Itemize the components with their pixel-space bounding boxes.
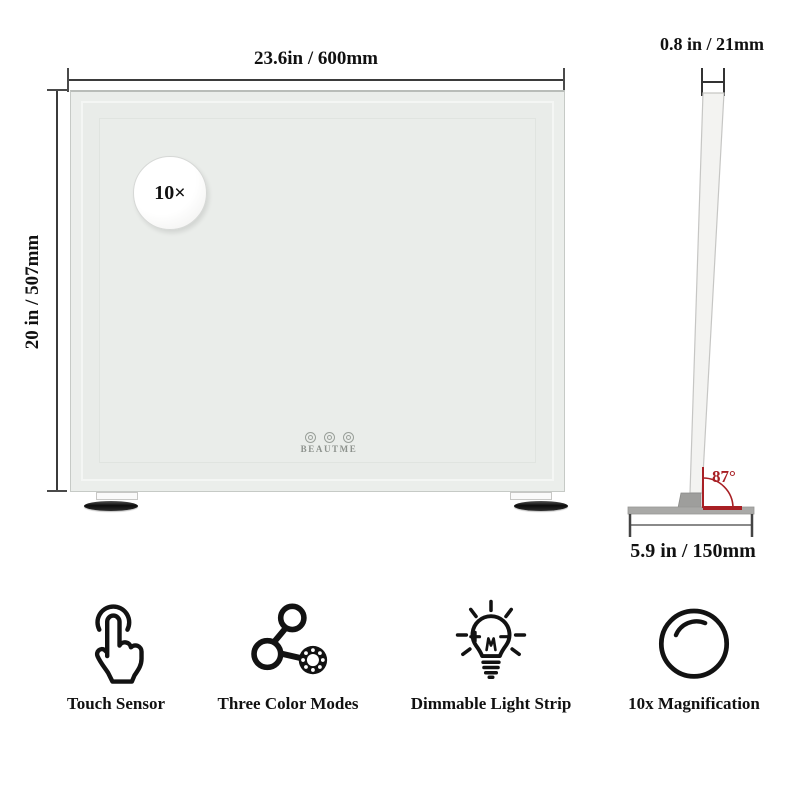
width-dimension-tick-right (563, 68, 565, 92)
mirror-front-view: 10× BEAUTME (70, 90, 565, 492)
width-dimension-label: 23.6in / 600mm (166, 48, 466, 70)
feature-10x-magnification: 10x Magnification (606, 594, 782, 714)
base-dimension-marker (630, 514, 752, 537)
feature-three-color-modes: Three Color Modes (200, 594, 376, 714)
tilt-angle-label: 87° (712, 467, 736, 487)
touch-control-icon (324, 432, 335, 443)
height-dimension-label: 20 in / 507mm (22, 192, 44, 392)
magnification-icon (606, 594, 782, 690)
left-foot-base (84, 501, 138, 511)
width-dimension-tick-left (67, 68, 69, 92)
feature-touch-sensor: Touch Sensor (28, 594, 204, 714)
height-dimension-tick-top (47, 89, 67, 91)
touch-sensor-icon (28, 594, 204, 690)
dimmable-light-strip-icon (403, 594, 579, 690)
right-foot-base (514, 501, 568, 511)
brand-logo: BEAUTME (269, 444, 389, 454)
height-dimension-tick-bottom (47, 490, 67, 492)
touch-control-icon (305, 432, 316, 443)
feature-dimmable-light-strip: Dimmable Light Strip (403, 594, 579, 714)
product-dimension-diagram: 23.6in / 600mm 20 in / 507mm 10× BEAUTME… (0, 0, 800, 800)
height-dimension-line (56, 90, 58, 492)
feature-label: Dimmable Light Strip (403, 694, 579, 714)
feature-label: Three Color Modes (200, 694, 376, 714)
side-view-drawing (600, 60, 800, 570)
feature-label: Touch Sensor (28, 694, 204, 714)
hinge-connector (678, 493, 701, 508)
thickness-dimension-label: 0.8 in / 21mm (612, 34, 800, 55)
base-dimension-label: 5.9 in / 150mm (608, 540, 778, 563)
thickness-dimension-marker (702, 68, 724, 96)
touch-control-icon (343, 432, 354, 443)
three-color-modes-icon (200, 594, 376, 690)
magnifying-spot-mirror: 10× (133, 156, 207, 230)
right-foot-bracket (510, 492, 552, 500)
width-dimension-line (68, 79, 565, 81)
magnification-badge: 10× (154, 182, 185, 205)
feature-label: 10x Magnification (606, 694, 782, 714)
mirror-side-profile (690, 93, 724, 493)
touch-button-row (279, 432, 379, 444)
led-light-strip-frame (81, 101, 554, 481)
left-foot-bracket (96, 492, 138, 500)
